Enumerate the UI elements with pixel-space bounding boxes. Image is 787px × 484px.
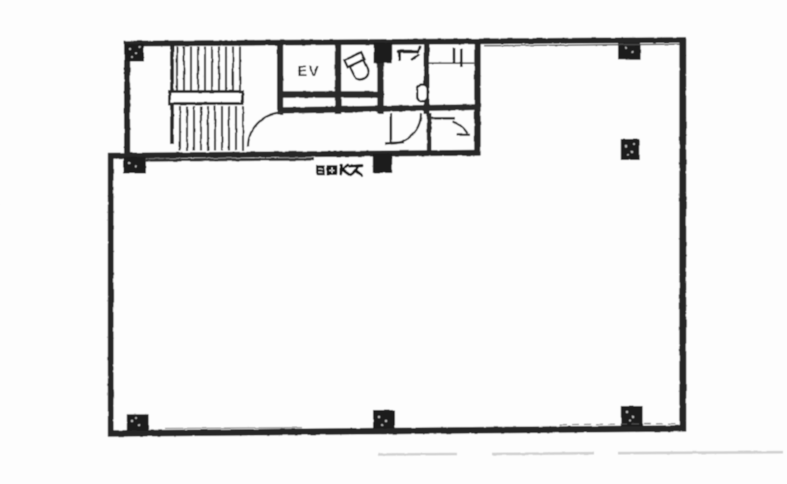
svg-text:EV: EV	[298, 64, 321, 80]
